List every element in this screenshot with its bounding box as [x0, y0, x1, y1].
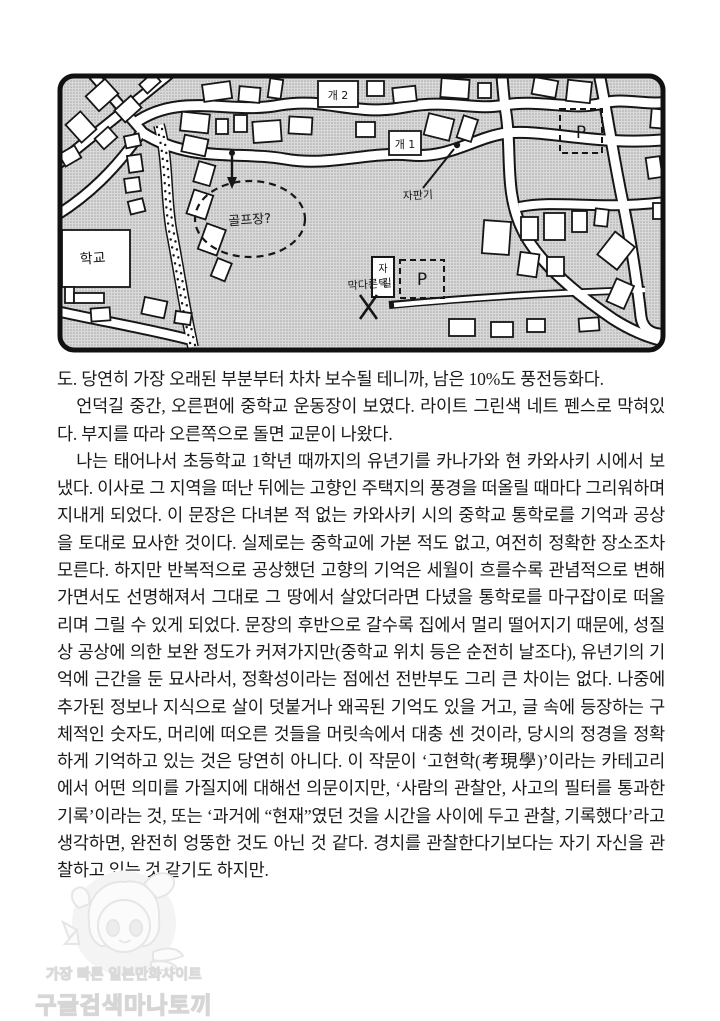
watermark-mascot-illustration: [49, 868, 199, 978]
map-label-dog2: 개 2: [328, 89, 349, 102]
watermark-line-2: 구글검색마나토끼: [24, 986, 224, 1020]
body-paragraph: 도. 당연히 가장 오래된 부분부터 차차 보수될 테니까, 남은 10%도 풍…: [57, 366, 665, 393]
watermark-line-1: 가장 빠른 일본만화사이트: [24, 964, 224, 984]
map-label-parking-ne: P: [576, 123, 586, 143]
page: { "page_type": "book-page-scan", "map": …: [0, 0, 720, 1021]
map-label-dog1: 개 1: [395, 138, 416, 151]
body-paragraph: 나는 태어나서 초등학교 1학년 때까지의 유년기를 카나가와 현 카와사키 시…: [57, 448, 665, 885]
map-label-vending: 자판기: [402, 188, 433, 203]
watermark: 가장 빠른 일본만화사이트 구글검색마나토끼: [24, 868, 224, 1020]
body-paragraph: 언덕길 중간, 오른편에 중학교 운동장이 보였다. 라이트 그린색 네트 펜스…: [57, 393, 665, 448]
body-text-block: 도. 당연히 가장 오래된 부분부터 차차 보수될 테니까, 남은 10%도 풍…: [57, 366, 665, 885]
map-label-parking-se: P: [417, 270, 427, 290]
map-label-golf: 골프장?: [228, 212, 272, 230]
map-label-school: 학교: [79, 250, 106, 268]
map-svg: 개 2 개 1 자판기 골프장? 학교 P P 막다른 길 자택: [55, 71, 668, 356]
map-illustration: 개 2 개 1 자판기 골프장? 학교 P P 막다른 길 자택: [55, 71, 668, 356]
